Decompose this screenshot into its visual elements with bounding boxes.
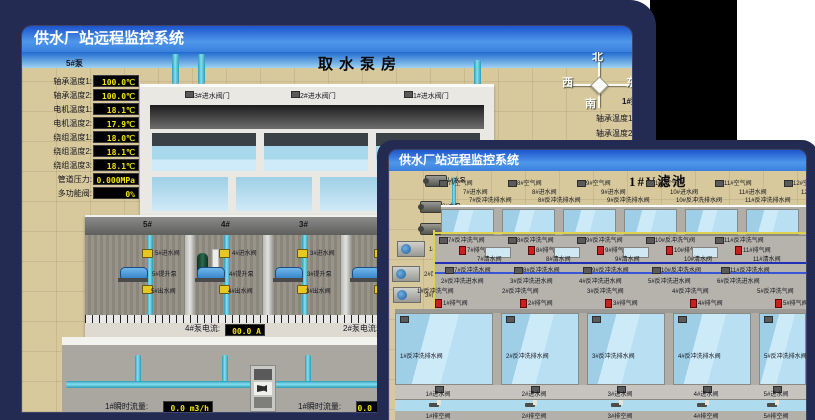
blower-fan-icon[interactable] bbox=[397, 241, 425, 257]
bay-inlet-label: 4#进水阀 bbox=[232, 251, 257, 257]
backwash-air-valve-icon[interactable] bbox=[508, 237, 517, 244]
backwash-air2-label: 2#反冲洗气阀 bbox=[502, 289, 539, 295]
compass-south: 南 bbox=[585, 99, 596, 110]
readout-label: 管道压力: bbox=[46, 176, 92, 184]
pool-inlet-label: 2#进水阀 bbox=[522, 392, 547, 398]
pool-drain-label: 4#反冲洗排水阀 bbox=[678, 354, 721, 360]
vent-valve-label: 2#排空阀 bbox=[522, 414, 547, 420]
backwash-air-valve-icon[interactable] bbox=[715, 237, 724, 244]
pool-cell: 4#反冲洗排水阀 bbox=[673, 313, 751, 385]
branch-pipe bbox=[305, 355, 311, 383]
readout-label: 轴承温度1: bbox=[46, 78, 92, 86]
backwash-water-label: 10#反冲洗水阀 bbox=[661, 268, 701, 274]
bottom-strip: 1#排空阀 2#排空阀 3#排空阀 4#排空阀 5#排空阀 bbox=[395, 411, 806, 420]
backwash-air-valve-icon[interactable] bbox=[577, 237, 586, 244]
pool-inlet-label: 4#进水阀 bbox=[694, 392, 719, 398]
readout-label: 绕组温度2: bbox=[46, 148, 92, 156]
vent-valve-label: 3#排空阀 bbox=[608, 414, 633, 420]
flow-readout-label: 1#瞬时流量: bbox=[298, 403, 341, 411]
air-valve-label: 7#空气阀 bbox=[448, 181, 473, 187]
compass-star bbox=[590, 76, 608, 94]
blower-fan-icon[interactable] bbox=[392, 266, 420, 282]
backwash-air-label: 9#反冲洗气阀 bbox=[586, 238, 623, 244]
right-panel-header: 1#泵 bbox=[622, 98, 632, 106]
vent-valve-label: 1#排空阀 bbox=[426, 414, 451, 420]
pool-valve-icon[interactable] bbox=[592, 316, 601, 323]
air-valve-icon[interactable] bbox=[577, 180, 586, 187]
exhaust-valve-icon[interactable] bbox=[528, 246, 535, 255]
pump-hall: 5# 4# 3# 2# 5#进水阀 5#提升泵 5#出水阀 bbox=[85, 215, 395, 337]
front-app-title: 供水厂站远程监控系统 bbox=[399, 153, 519, 167]
background-black-panel bbox=[650, 0, 737, 150]
backwash-inlet-label: 6#反冲洗进水阀 bbox=[717, 279, 760, 285]
backwash-air-label: 10#反冲洗气阀 bbox=[655, 238, 695, 244]
vent-valve-label: 4#排空阀 bbox=[694, 414, 719, 420]
faucet-icon[interactable] bbox=[525, 403, 535, 407]
inlet-valve-icon[interactable] bbox=[404, 91, 413, 98]
filter-pool-scene: 1#V滤池 1#水泵 2#水泵 3#水泵 1#风机 2#风机 3#风机 7#空气… bbox=[389, 171, 806, 420]
hall-ledge-ticks bbox=[85, 315, 395, 323]
bay-inlet-label: 3#进水阀 bbox=[310, 251, 335, 257]
backwash-water-label: 9#反冲洗水阀 bbox=[592, 268, 629, 274]
inlet-valve-label: 2#进水阀门 bbox=[300, 93, 336, 100]
front-window-titlebar[interactable]: 供水厂站远程监控系统 bbox=[389, 150, 806, 171]
water-cell bbox=[264, 133, 368, 171]
inlet-valve-icon[interactable] bbox=[219, 249, 230, 258]
exhaust-valve-label: 3#排气阀 bbox=[613, 301, 638, 307]
current-readout-value: 00.0 A bbox=[225, 324, 265, 336]
inlet-valve-icon[interactable] bbox=[142, 249, 153, 258]
reservoir-roof-band bbox=[150, 105, 484, 129]
clean-valve-label: 11#清水阀 bbox=[753, 257, 781, 263]
lower-pools: 1#反冲洗排水阀 2#反冲洗排水阀 3#反冲洗排水阀 4#反冲洗排水阀 bbox=[395, 309, 806, 389]
air-valve-label: 10#空气阀 bbox=[655, 181, 683, 187]
backwash-drain-label: 8#反冲洗排水阀 bbox=[538, 198, 581, 204]
backwash-air2-label: 4#反冲洗气阀 bbox=[672, 289, 709, 295]
backwash-air-label: 7#反冲洗气阀 bbox=[448, 238, 485, 244]
backwash-air2-label: 5#反冲洗气阀 bbox=[757, 289, 794, 295]
flow-readout-value: 0.0 m3/h bbox=[163, 401, 213, 412]
backwash-air-valve-icon[interactable] bbox=[646, 237, 655, 244]
readout-value: 18.1℃ bbox=[93, 159, 139, 171]
pump-base bbox=[350, 278, 380, 282]
flow-readout-label: 1#瞬时流量: bbox=[105, 403, 148, 411]
bay-divider bbox=[341, 235, 351, 315]
scene-title-pump-house: 取水泵房 bbox=[318, 53, 402, 74]
pool-drain-label: 1#反冲洗排水阀 bbox=[400, 354, 443, 360]
vent-valve-label: 5#排空阀 bbox=[764, 414, 789, 420]
pool-inlet-label: 1#进水阀 bbox=[426, 392, 451, 398]
back-app-title: 供水厂站远程监控系统 bbox=[34, 30, 184, 47]
branch-pipe bbox=[222, 355, 228, 383]
exhaust-valve-icon[interactable] bbox=[605, 299, 612, 308]
water-cell bbox=[236, 177, 312, 211]
air-valve-label: 12#空气阀 bbox=[793, 181, 806, 187]
pump-base bbox=[118, 278, 148, 282]
backwash-water-label: 11#反冲洗水阀 bbox=[730, 268, 770, 274]
bay-inlet-label: 5#进水阀 bbox=[155, 251, 180, 257]
readout-label: 轴承温度2: bbox=[46, 92, 92, 100]
front-card-frame: 供水厂站远程监控系统 1#V滤池 1#水泵 2#水泵 3#水泵 1#风机 2#风… bbox=[377, 140, 815, 420]
readout-label: 多功能阀: bbox=[46, 190, 92, 198]
pool-inlet-label: 5#进水阀 bbox=[764, 392, 789, 398]
readout-label: 绕组温度3: bbox=[46, 162, 92, 170]
backwash-inlet-label: 4#反冲洗进水阀 bbox=[579, 279, 622, 285]
current-readout-label: 2#泵电流: bbox=[343, 325, 378, 333]
exhaust-valve-icon[interactable] bbox=[520, 299, 527, 308]
inlet-valve-label: 8#进水阀 bbox=[532, 190, 557, 196]
readout-value: 100.0℃ bbox=[93, 75, 139, 87]
bay-number: 3# bbox=[299, 221, 308, 229]
pump-panel-header: 5#泵 bbox=[66, 60, 83, 68]
back-window-titlebar[interactable]: 供水厂站远程监控系统 bbox=[22, 26, 632, 52]
riser-pipe bbox=[198, 54, 205, 84]
exhaust-valve-icon[interactable] bbox=[435, 299, 442, 308]
pool-inlet-label: 3#进水阀 bbox=[608, 392, 633, 398]
backwash-inlet-label: 5#反冲洗进水阀 bbox=[648, 279, 691, 285]
backwash-air2-label: 1#反冲洗气阀 bbox=[417, 289, 454, 295]
riser-pipe bbox=[172, 54, 179, 84]
exhaust-valve-icon[interactable] bbox=[775, 299, 782, 308]
pool-valve-icon[interactable] bbox=[678, 316, 687, 323]
exhaust-valve-label: 5#排气阀 bbox=[783, 301, 806, 307]
clean-valve-label: 10#清水阀 bbox=[684, 257, 712, 263]
readout-value: 0% bbox=[93, 187, 139, 199]
inlet-valve-label: 3#进水阀门 bbox=[194, 93, 230, 100]
right-panel-label: 轴承温度2: bbox=[596, 130, 632, 138]
exhaust-valve-label: 1#排气阀 bbox=[443, 301, 468, 307]
compass-east: 东 bbox=[626, 78, 632, 89]
exhaust-valve-label: 4#排气阀 bbox=[698, 301, 723, 307]
pool-valve-icon[interactable] bbox=[400, 316, 409, 323]
bay-number: 5# bbox=[143, 221, 152, 229]
readout-label: 电机温度1: bbox=[46, 106, 92, 114]
readout-value: 18.1℃ bbox=[93, 145, 139, 157]
bay-outlet-label: 3#出水阀 bbox=[306, 289, 331, 295]
apron-wall-edge bbox=[62, 337, 395, 345]
air-valve-label: 11#空气阀 bbox=[724, 181, 752, 187]
desktop-canvas: 供水厂站远程监控系统 取水泵房 5#泵 轴承温度1: 100.0℃ 轴承温度2:… bbox=[0, 0, 815, 420]
readout-value: 100.0℃ bbox=[93, 89, 139, 101]
backwash-drain-label: 10#反冲洗排水阀 bbox=[676, 198, 722, 204]
exhaust-valve-icon[interactable] bbox=[459, 246, 466, 255]
backwash-air-label: 8#反冲洗气阀 bbox=[517, 238, 554, 244]
hall-roof-band bbox=[85, 215, 395, 237]
backwash-air-label: 11#反冲洗气阀 bbox=[724, 238, 764, 244]
inlet-valve-label: 9#进水阀 bbox=[601, 190, 626, 196]
backwash-water-valve-icon[interactable] bbox=[721, 267, 730, 274]
air-pipe-yellow bbox=[433, 232, 806, 234]
faucet-icon[interactable] bbox=[767, 403, 777, 407]
exhaust-valve-icon[interactable] bbox=[735, 246, 742, 255]
clean-valve-label: 8#清水阀 bbox=[546, 257, 571, 263]
inlet-valve-icon[interactable] bbox=[291, 91, 300, 98]
exhaust-valve-icon[interactable] bbox=[666, 246, 673, 255]
pool-drain-label: 5#反冲洗排水阀 bbox=[764, 354, 806, 360]
inlet-valve-label: 1#进水阀门 bbox=[413, 93, 449, 100]
clean-valve-label: 9#清水阀 bbox=[615, 257, 640, 263]
readout-value: 0.000MPa bbox=[93, 173, 139, 185]
branch-pipe bbox=[135, 355, 141, 383]
exhaust-valve-icon[interactable] bbox=[597, 246, 604, 255]
clean-valve-label: 7#清水阀 bbox=[477, 257, 502, 263]
exhaust-valve-label: 2#排气阀 bbox=[528, 301, 553, 307]
pump-base bbox=[273, 278, 303, 282]
backwash-air2-label: 3#反冲洗气阀 bbox=[587, 289, 624, 295]
pool-valve-icon[interactable] bbox=[764, 316, 773, 323]
pump-base bbox=[195, 278, 225, 282]
faucet-icon[interactable] bbox=[611, 403, 621, 407]
water-cell bbox=[152, 177, 228, 211]
faucet-icon[interactable] bbox=[429, 403, 439, 407]
air-valve-icon[interactable] bbox=[784, 180, 793, 187]
front-window: 供水厂站远程监控系统 1#V滤池 1#水泵 2#水泵 3#水泵 1#风机 2#风… bbox=[389, 150, 806, 420]
backwash-drain-label: 9#反冲洗排水阀 bbox=[607, 198, 650, 204]
air-valve-icon[interactable] bbox=[646, 180, 655, 187]
backwash-water-valve-icon[interactable] bbox=[445, 267, 454, 274]
apron: 1#瞬时流量: 0.0 m3/h 1#瞬时流量: 0.0 m3/h bbox=[62, 337, 395, 412]
readout-value: 18.0℃ bbox=[93, 131, 139, 143]
backwash-water-valve-icon[interactable] bbox=[514, 267, 523, 274]
right-panel-label: 轴承温度1: bbox=[596, 115, 632, 123]
pool-valve-icon[interactable] bbox=[506, 316, 515, 323]
backwash-water-valve-icon[interactable] bbox=[583, 267, 592, 274]
pool-drain-label: 3#反冲洗排水阀 bbox=[592, 354, 635, 360]
readout-value: 18.1℃ bbox=[93, 103, 139, 115]
backwash-inlet-label: 2#反冲洗进水阀 bbox=[441, 279, 484, 285]
inlet-valve-label: 7#进水阀 bbox=[463, 190, 488, 196]
water-cell bbox=[152, 133, 256, 171]
bay-pump-label: 3#提升泵 bbox=[307, 272, 332, 278]
pool-drain-label: 2#反冲洗排水阀 bbox=[506, 354, 549, 360]
bay-pump-label: 5#提升泵 bbox=[152, 272, 177, 278]
compass-west: 西 bbox=[562, 78, 573, 89]
readout-label: 电机温度2: bbox=[46, 120, 92, 128]
riser-pipe bbox=[474, 60, 481, 86]
backwash-inlet-label: 3#反冲洗进水阀 bbox=[510, 279, 553, 285]
pool-cell: 3#反冲洗排水阀 bbox=[587, 313, 665, 385]
exhaust-valve-label: 11#排气阀 bbox=[743, 248, 771, 254]
bay-number: 4# bbox=[221, 221, 230, 229]
air-valve-icon[interactable] bbox=[439, 180, 448, 187]
water-pump-icon[interactable] bbox=[420, 201, 442, 213]
inlet-valve-label: 12#进水阀 bbox=[801, 190, 806, 196]
pool-cell: 1#反冲洗排水阀 bbox=[395, 313, 493, 385]
lower-walkway: 1#进水阀 2#进水阀 3#进水阀 4#进水阀 5#进水阀 bbox=[395, 385, 806, 399]
bay-pump-label: 4#提升泵 bbox=[229, 272, 254, 278]
inlet-valve-icon[interactable] bbox=[185, 91, 194, 98]
pool-cell: 5#反冲洗排水阀 bbox=[759, 313, 806, 385]
bay-divider bbox=[185, 235, 195, 315]
faucet-icon[interactable] bbox=[697, 403, 707, 407]
exhaust-valve-icon[interactable] bbox=[690, 299, 697, 308]
inlet-valve-label: 11#进水阀 bbox=[739, 190, 767, 196]
backwash-water-label: 7#反冲洗水阀 bbox=[454, 268, 491, 274]
inlet-valve-label: 10#进水阀 bbox=[670, 190, 698, 196]
backwash-drain-label: 11#反冲洗排水阀 bbox=[745, 198, 791, 204]
pool-cell: 2#反冲洗排水阀 bbox=[501, 313, 579, 385]
backwash-water-label: 8#反冲洗水阀 bbox=[523, 268, 560, 274]
bay-outlet-label: 5#出水阀 bbox=[151, 289, 176, 295]
current-readout-label: 4#泵电流: bbox=[185, 325, 220, 333]
backwash-water-valve-icon[interactable] bbox=[652, 267, 661, 274]
inlet-valve-icon[interactable] bbox=[297, 249, 308, 258]
readout-label: 绕组温度1: bbox=[46, 134, 92, 142]
bay-outlet-label: 4#出水阀 bbox=[228, 289, 253, 295]
compass-north: 北 bbox=[592, 52, 603, 63]
air-valve-icon[interactable] bbox=[715, 180, 724, 187]
air-valve-icon[interactable] bbox=[508, 180, 517, 187]
camera-icon[interactable] bbox=[250, 365, 276, 412]
backwash-air-valve-icon[interactable] bbox=[439, 237, 448, 244]
air-valve-label: 9#空气阀 bbox=[586, 181, 611, 187]
backwash-drain-label: 7#反冲洗排水阀 bbox=[469, 198, 512, 204]
air-valve-label: 8#空气阀 bbox=[517, 181, 542, 187]
main-outlet-pipe bbox=[66, 381, 392, 388]
readout-value: 17.9℃ bbox=[93, 117, 139, 129]
bay-divider bbox=[263, 235, 273, 315]
